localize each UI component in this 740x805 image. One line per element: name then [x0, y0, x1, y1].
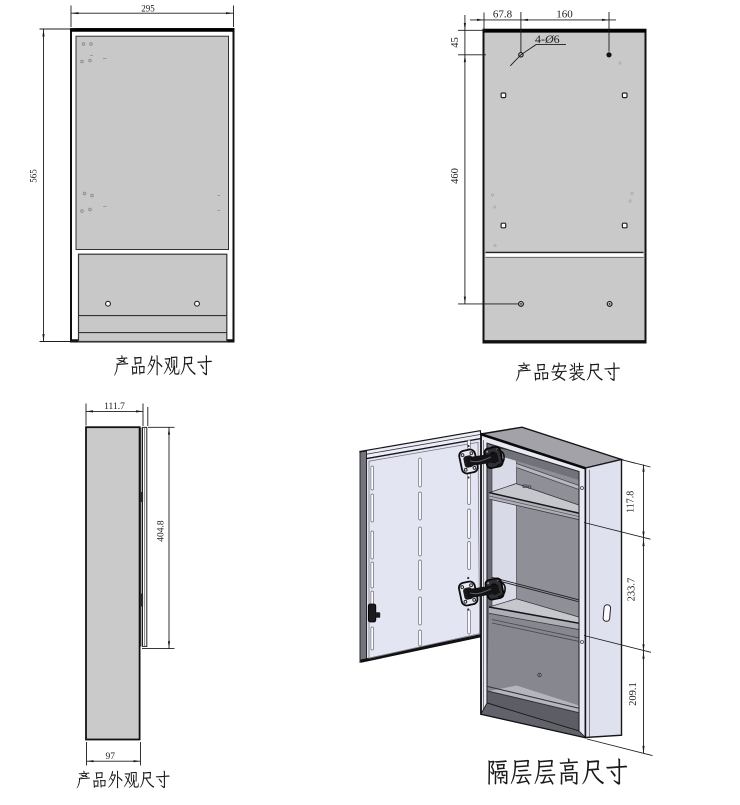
svg-text:295: 295	[141, 4, 155, 14]
svg-text:160: 160	[556, 9, 573, 21]
svg-text:209.1: 209.1	[628, 682, 639, 706]
svg-text:4-Ø6: 4-Ø6	[535, 32, 560, 46]
svg-text:45: 45	[450, 37, 461, 48]
svg-text:117.8: 117.8	[626, 491, 637, 513]
svg-text:233.7: 233.7	[626, 578, 637, 602]
svg-text:97: 97	[105, 752, 115, 762]
svg-text:67.8: 67.8	[493, 9, 513, 21]
svg-text:460: 460	[450, 168, 461, 184]
svg-text:111.7: 111.7	[104, 402, 125, 412]
svg-text:565: 565	[29, 169, 39, 183]
svg-text:404.8: 404.8	[156, 520, 166, 542]
